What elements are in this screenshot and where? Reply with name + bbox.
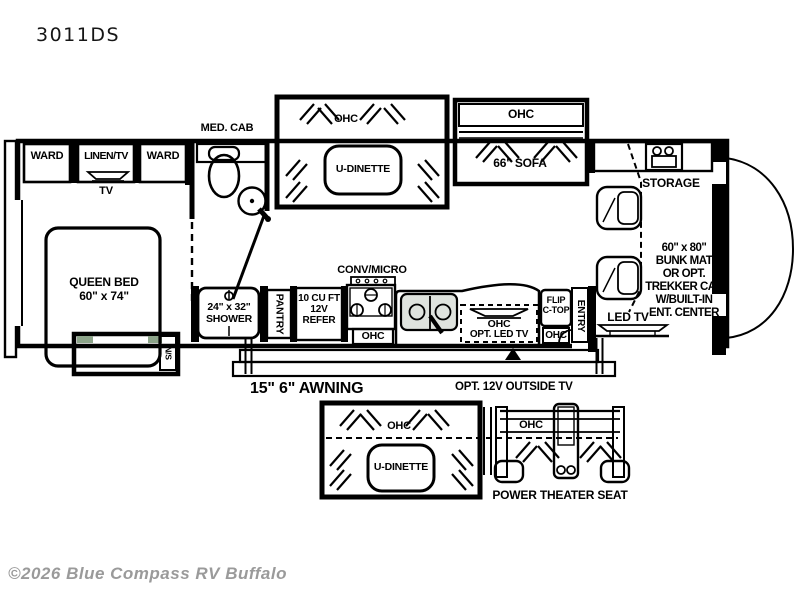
bunk-label-2: BUNK MAT xyxy=(656,256,712,268)
theater-ohc-label: OHC xyxy=(519,420,543,431)
pantry-label: PANTRY xyxy=(274,294,285,335)
flip-ctop-label-1: FLIP xyxy=(547,296,566,305)
med-cab-label: MED. CAB xyxy=(201,123,254,134)
conv-micro-label: CONV/MICRO xyxy=(337,265,407,276)
sofa-ohc-label: OHC xyxy=(508,108,534,120)
bedroom xyxy=(24,141,194,374)
outside-tv-label: OPT. 12V OUTSIDE TV xyxy=(455,382,573,394)
cab-nose xyxy=(726,158,793,338)
awning-label: 15" 6" AWNING xyxy=(250,381,363,397)
flip-ctop-label-2: C-TOP xyxy=(543,306,570,315)
bathroom xyxy=(192,141,271,303)
option-dinette-label: U-DINETTE xyxy=(374,462,428,473)
bunk-label-6: ENT. CENTER xyxy=(649,308,719,320)
awning-bar-2 xyxy=(233,362,615,376)
rear-cap xyxy=(5,141,16,357)
entry-ohc-label: OHC xyxy=(545,331,567,341)
dealer-watermark: ©2026 Blue Compass RV Buffalo xyxy=(8,564,287,584)
theater-side-right xyxy=(613,407,624,477)
bunk-label-4: TREKKER CAP xyxy=(645,282,723,294)
stove xyxy=(347,285,395,329)
sofa-label: 66" SOFA xyxy=(493,157,546,169)
linen-tv-label: LINEN/TV xyxy=(84,151,128,162)
opt-tv-ohc-label: OHC xyxy=(488,319,511,330)
floorplan-model-title: 3011DS xyxy=(36,24,120,46)
refer-label-1: 10 CU FT xyxy=(298,294,340,304)
theater-seat-label: POWER THEATER SEAT xyxy=(492,489,627,501)
shower-label: SHOWER xyxy=(206,314,252,325)
ward-right-label: WARD xyxy=(147,151,180,162)
entry-label: ENTRY xyxy=(575,300,585,333)
dinette-slideout xyxy=(277,97,447,207)
refer-label-3: REFER xyxy=(303,316,336,326)
theater-side-left xyxy=(496,407,507,477)
bunk-label-1: 60" x 80" xyxy=(662,243,707,255)
nightstand-label: N/S xyxy=(164,346,173,360)
tv-label: TV xyxy=(99,186,113,197)
storage-label: STORAGE xyxy=(642,177,700,189)
u-dinette-label: U-DINETTE xyxy=(336,164,390,175)
option-dinette-ohc-label: OHC xyxy=(387,421,411,432)
refer-label-2: 12V xyxy=(310,305,327,315)
queen-bed-size-label: 60" x 74" xyxy=(79,290,129,302)
shower-size-label: 24" x 32" xyxy=(207,302,250,313)
bunk-label-5: W/BUILT-IN xyxy=(656,295,713,307)
awning-bar-1 xyxy=(240,350,598,362)
options-section xyxy=(322,403,629,497)
dinette-ohc-label: OHC xyxy=(334,114,358,125)
opt-led-tv-label: OPT. LED TV xyxy=(470,330,528,340)
stove-ohc-label: OHC xyxy=(362,331,385,342)
led-tv-icon xyxy=(470,309,528,316)
ward-left-label: WARD xyxy=(31,151,64,162)
bunk-label-3: OR OPT. xyxy=(663,269,706,281)
queen-bed-label: QUEEN BED xyxy=(69,276,139,288)
front-led-tv-label: LED TV xyxy=(607,311,648,323)
option-dinette-slide xyxy=(322,403,480,497)
theater-armrest-left xyxy=(495,461,523,482)
bedroom-tv xyxy=(88,172,128,179)
floorplan-page: 3011DS WARD LINEN/TV WARD TV MED. CAB QU… xyxy=(0,0,800,600)
